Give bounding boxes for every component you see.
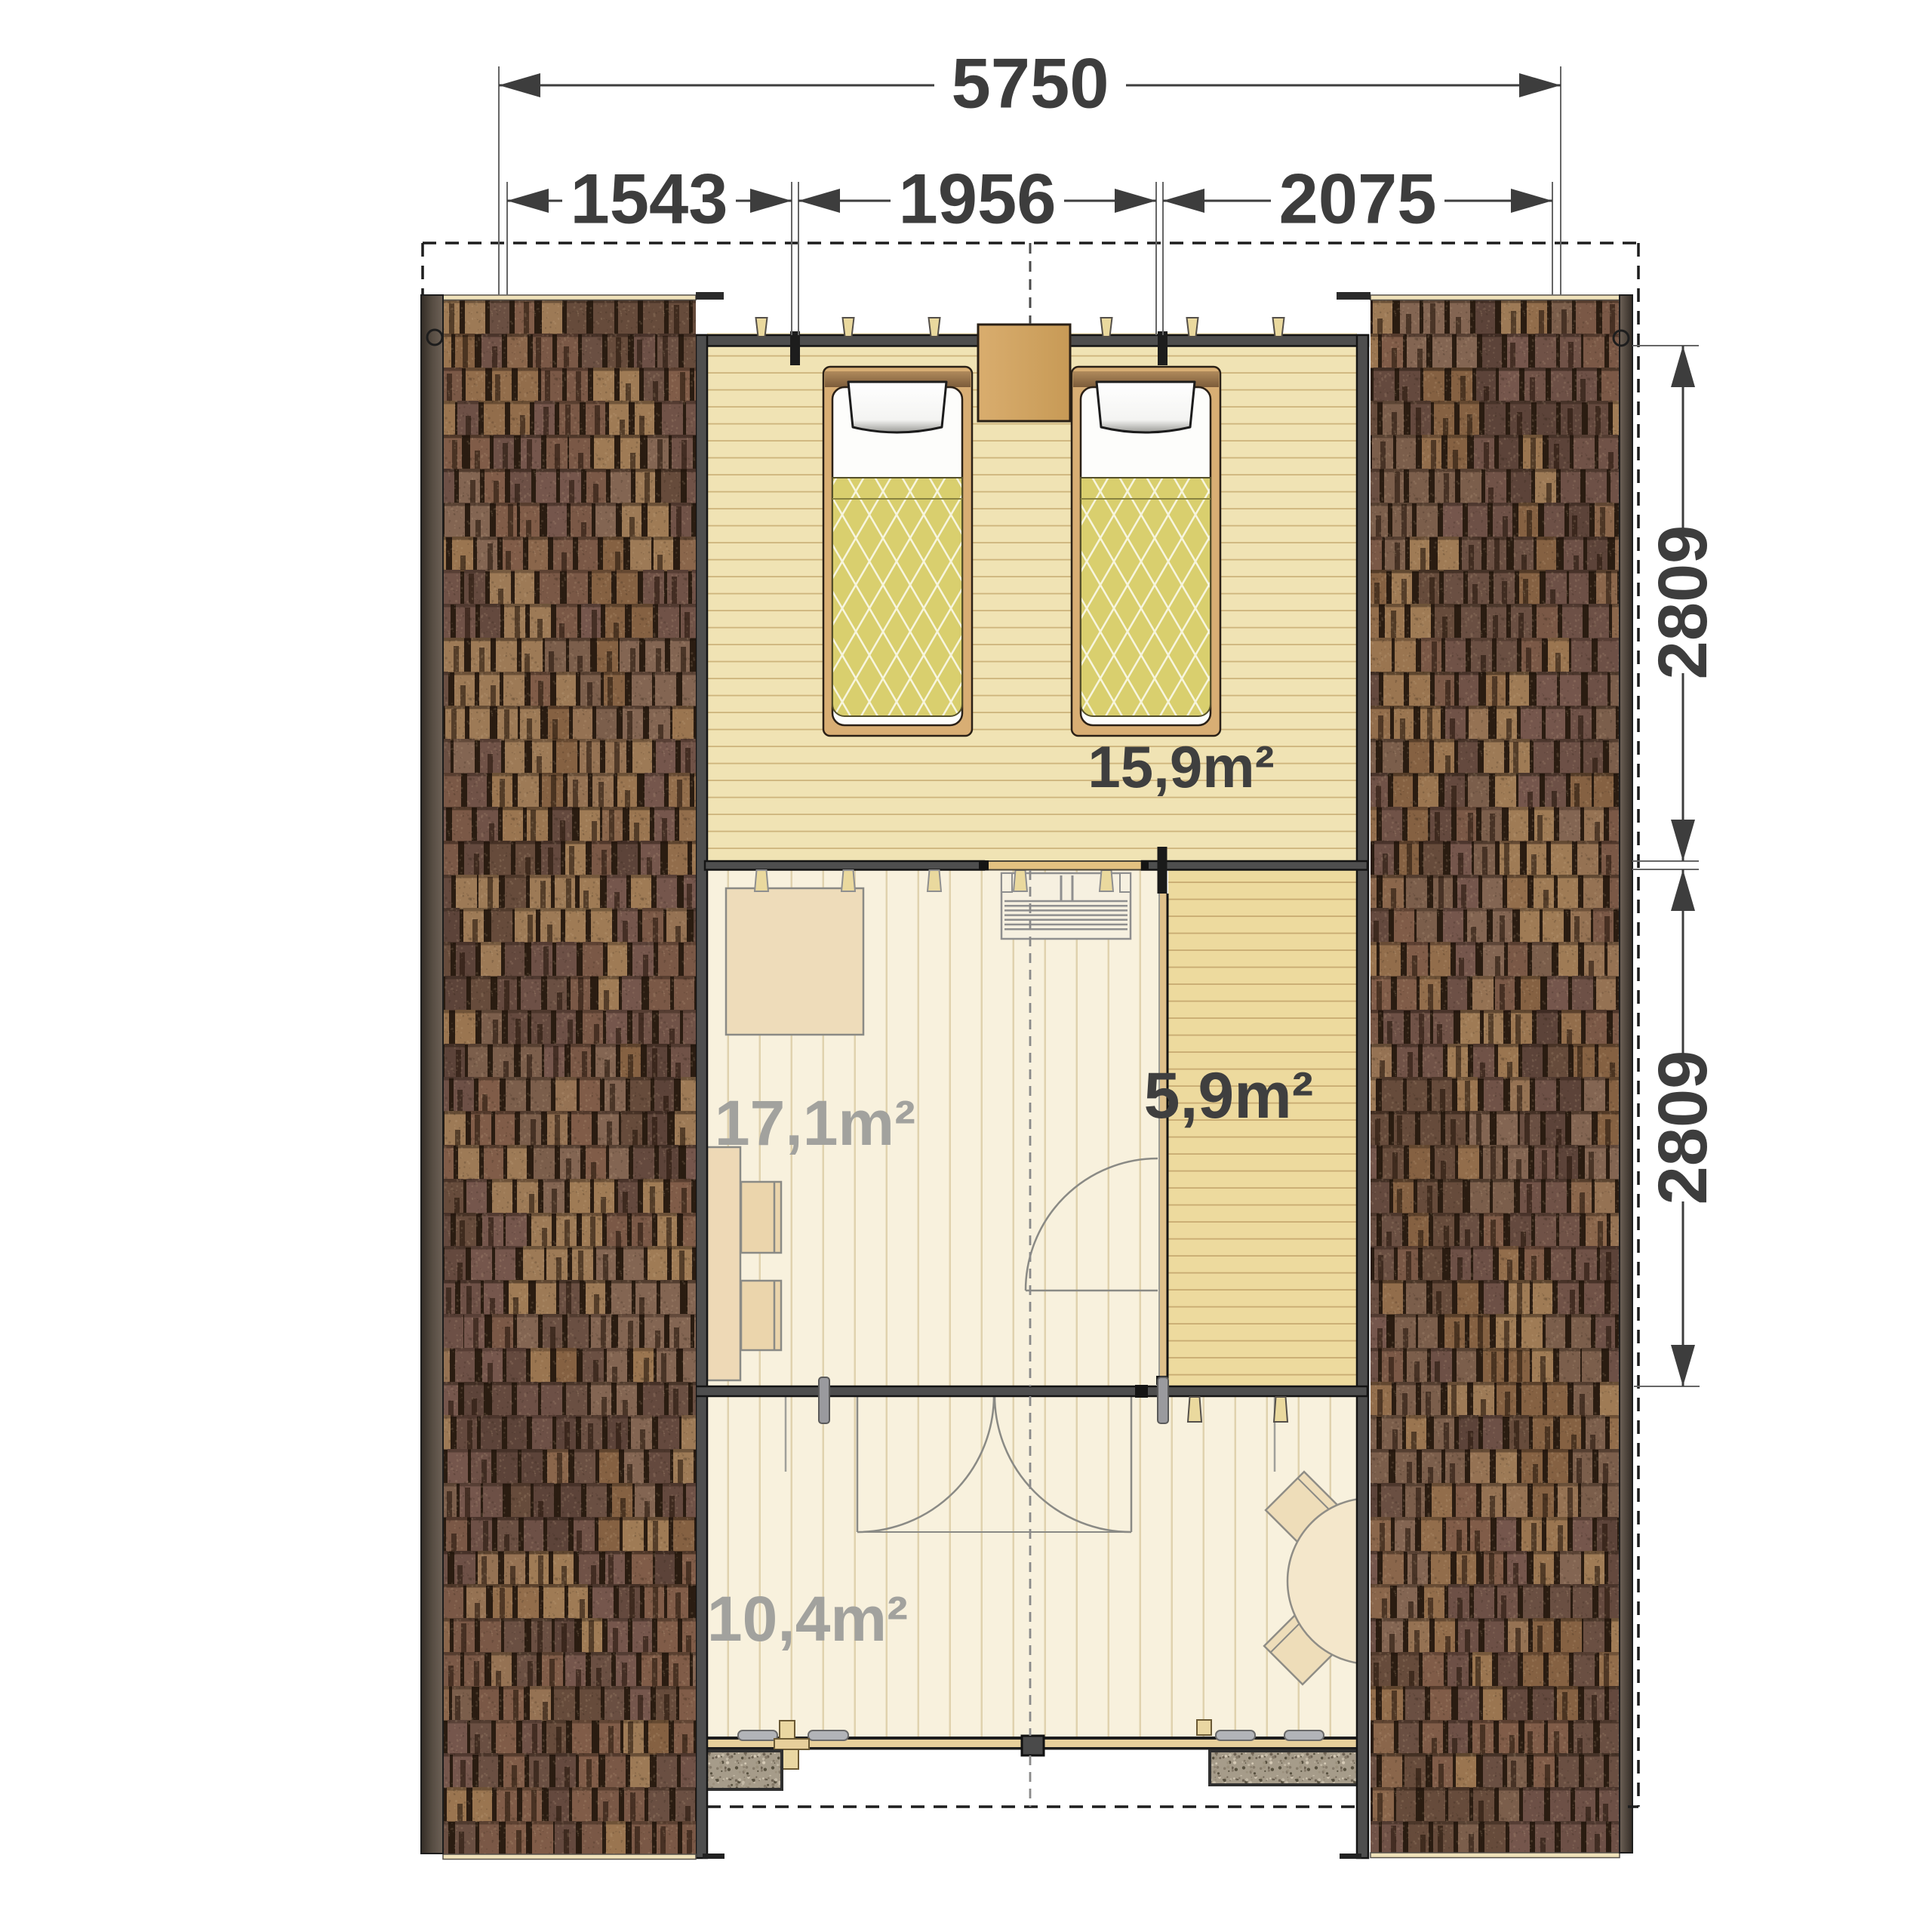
svg-text:5750: 5750 bbox=[951, 44, 1109, 123]
svg-text:15,9m²: 15,9m² bbox=[1088, 734, 1274, 800]
svg-text:1543: 1543 bbox=[570, 159, 728, 238]
svg-text:2809: 2809 bbox=[1644, 1051, 1721, 1205]
svg-text:2809: 2809 bbox=[1644, 525, 1721, 680]
svg-text:1956: 1956 bbox=[898, 159, 1056, 238]
svg-text:17,1m²: 17,1m² bbox=[715, 1088, 915, 1158]
svg-text:2075: 2075 bbox=[1278, 159, 1436, 238]
svg-text:10,4m²: 10,4m² bbox=[707, 1583, 908, 1654]
svg-text:5,9m²: 5,9m² bbox=[1144, 1060, 1314, 1132]
